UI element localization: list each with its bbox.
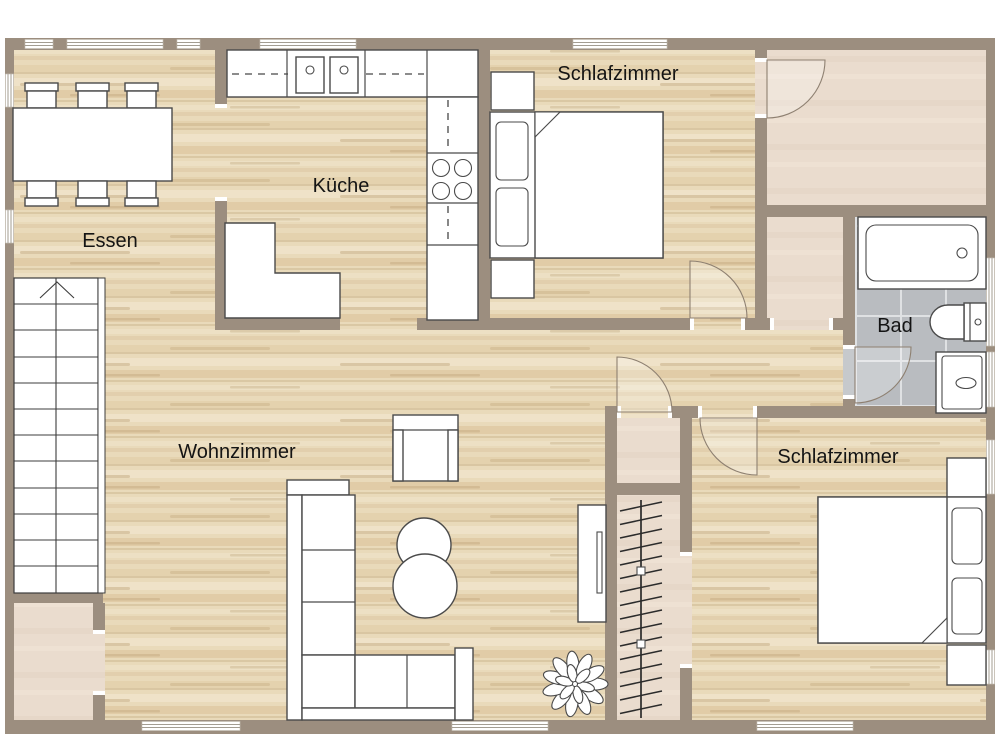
chair [25, 83, 58, 108]
nightstand [947, 458, 986, 497]
chair [125, 83, 158, 108]
mattress [818, 497, 947, 643]
sofa-backrest [302, 708, 455, 720]
window [25, 40, 53, 49]
door-opening-strip [755, 62, 767, 114]
basin [956, 378, 976, 389]
burner [433, 183, 450, 200]
pillow [952, 578, 982, 634]
window [452, 722, 548, 731]
pillow [496, 122, 528, 180]
armchair [393, 415, 458, 481]
wall [478, 50, 490, 320]
wall [680, 668, 692, 720]
burner [433, 160, 450, 177]
hall-closet-floor [767, 217, 843, 318]
sofa-armrest [455, 648, 473, 720]
dining-table [13, 108, 172, 181]
window [260, 40, 356, 49]
wall [755, 50, 767, 58]
rail-bracket [637, 640, 645, 648]
wall [215, 318, 340, 330]
burner [455, 160, 472, 177]
door-jamb [93, 691, 105, 695]
wall [755, 118, 767, 318]
wall [745, 318, 770, 330]
door-jamb [753, 406, 757, 418]
burner [455, 183, 472, 200]
chair [125, 181, 158, 206]
door-jamb [829, 318, 833, 330]
bathroom-sink [936, 352, 986, 413]
window [987, 258, 995, 346]
door-opening-strip [770, 318, 833, 330]
sofa-seats [355, 655, 455, 708]
wall [843, 213, 855, 345]
door-jamb [755, 58, 767, 62]
stair-stringer [98, 278, 105, 593]
floor-plan: Essen Küche Schlafzimmer Bad Wohnzimmer … [0, 0, 1000, 739]
door-jamb [690, 318, 694, 330]
door-jamb [741, 318, 745, 330]
wall [93, 695, 105, 720]
door-jamb [680, 552, 692, 556]
door-opening-strip [843, 349, 855, 399]
room-label-kitchen: Küche [313, 175, 370, 197]
pillow [952, 508, 982, 564]
door-jamb [680, 664, 692, 668]
bathtub [858, 217, 986, 289]
door-jamb [770, 318, 774, 330]
kitchen-counter-right [427, 97, 478, 320]
tv [597, 532, 602, 593]
wall [605, 406, 617, 720]
window [142, 722, 240, 731]
sofa-seats [302, 495, 355, 655]
dining-set [13, 83, 172, 206]
room-label-bathroom: Bad [877, 315, 913, 337]
toilet [930, 303, 986, 341]
nightstand [491, 72, 534, 110]
coffee-tables [393, 518, 457, 618]
window [573, 40, 667, 49]
sofa-backrest [287, 495, 302, 720]
drain [957, 248, 967, 258]
door-jamb [698, 406, 702, 418]
tv-board [578, 505, 606, 622]
door-opening-strip [680, 556, 692, 664]
door-opening-strip [93, 634, 105, 691]
wall [605, 483, 692, 495]
door-jamb [93, 630, 105, 634]
staircase [14, 278, 105, 593]
room-label-living: Wohnzimmer [178, 441, 296, 463]
door-jamb [843, 395, 855, 399]
door-jamb [215, 197, 227, 201]
room-label-dining: Essen [82, 230, 138, 252]
sofa-armrest [287, 480, 349, 495]
window [987, 650, 995, 684]
chair [76, 181, 109, 206]
window [177, 40, 200, 49]
wall [93, 603, 105, 630]
wardrobe-floor [617, 495, 680, 720]
window [6, 210, 14, 243]
door-jamb [843, 345, 855, 349]
room-label-bedroom-top: Schlafzimmer [557, 63, 678, 85]
nightstand [947, 645, 986, 685]
door-jamb [755, 114, 767, 118]
wall [680, 406, 692, 552]
room-label-bedroom-bottom: Schlafzimmer [777, 446, 898, 468]
wall [767, 205, 986, 217]
window [987, 440, 995, 494]
wall [215, 50, 227, 104]
wall [5, 593, 103, 603]
vestibule-floor [617, 418, 680, 483]
round-table [393, 554, 457, 618]
window [6, 74, 14, 107]
window [987, 352, 995, 407]
floor-plan-canvas: Essen Küche Schlafzimmer Bad Wohnzimmer … [0, 0, 1000, 739]
entry-room-floor [14, 601, 93, 720]
mattress [535, 112, 663, 258]
door-jamb [215, 104, 227, 108]
chair [25, 181, 58, 206]
nightstand [491, 260, 534, 298]
chair [76, 83, 109, 108]
rail-bracket [637, 567, 645, 575]
sofa-corner [302, 655, 355, 708]
pillow [496, 188, 528, 246]
window [757, 722, 853, 731]
window [67, 40, 163, 49]
